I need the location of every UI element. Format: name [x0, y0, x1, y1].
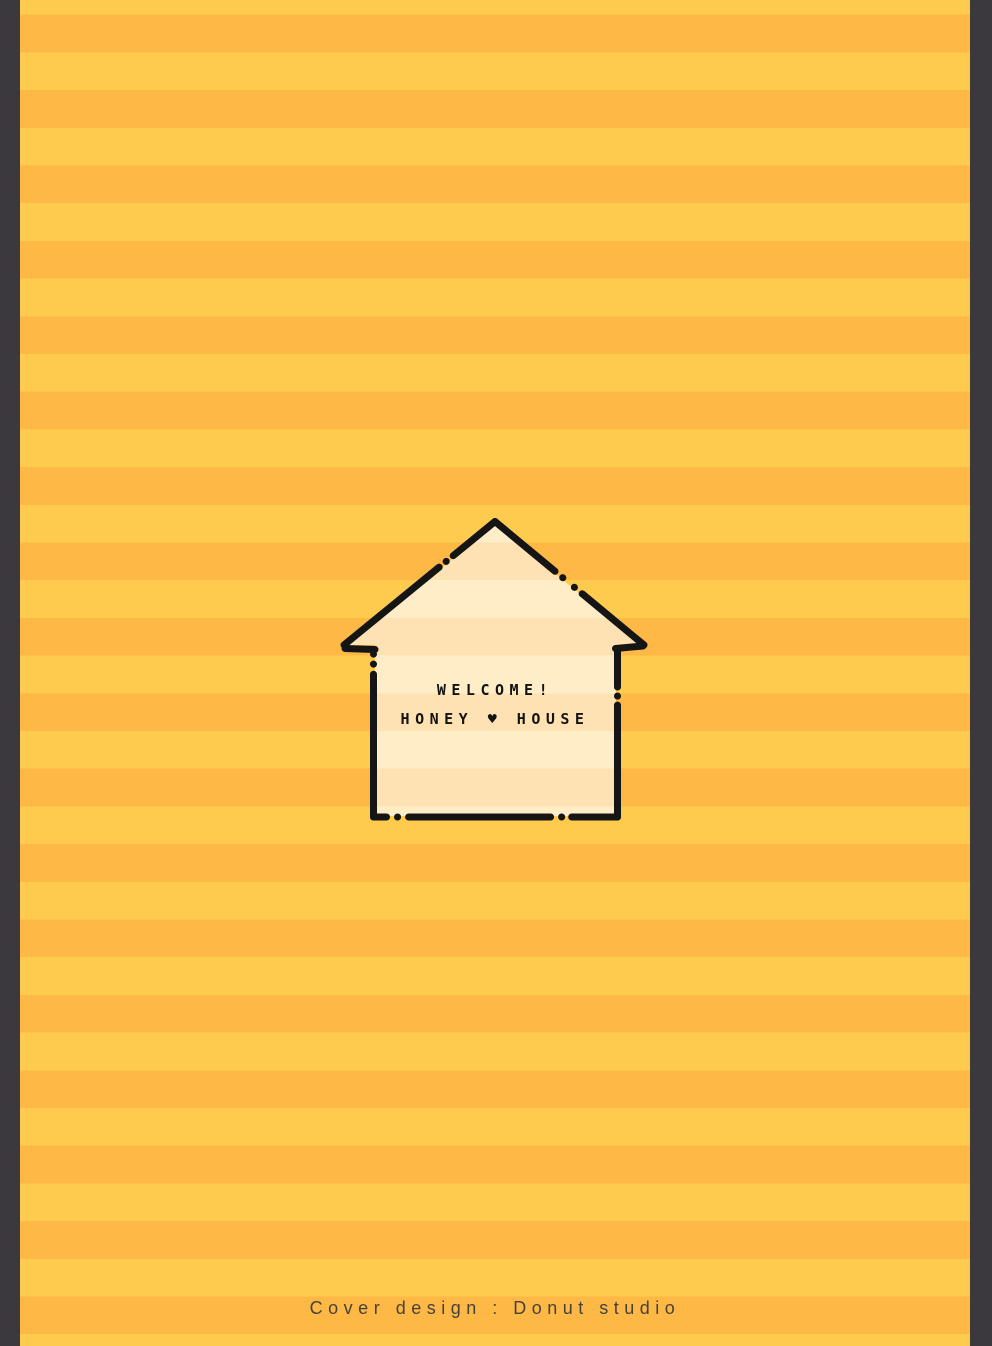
house-name-left: HONEY	[401, 710, 474, 728]
cover-page: WELCOME! HONEY ♥ HOUSE Cover design : Do…	[20, 0, 970, 1346]
eave-right-line	[616, 646, 644, 649]
roof-left-line	[344, 522, 495, 646]
house-outline	[20, 0, 970, 1346]
roof-right-line	[495, 522, 644, 646]
house-name-right: HOUSE	[517, 710, 590, 728]
left-frame-bar	[0, 0, 20, 1346]
house-name-text: HONEY ♥ HOUSE	[20, 705, 970, 734]
heart-icon: ♥	[473, 710, 517, 728]
right-frame-bar	[970, 0, 992, 1346]
credit-text: Cover design : Donut studio	[20, 1296, 970, 1320]
eave-left-line	[345, 649, 375, 650]
welcome-text: WELCOME!	[20, 676, 970, 705]
house-text-block: WELCOME! HONEY ♥ HOUSE	[20, 676, 970, 734]
